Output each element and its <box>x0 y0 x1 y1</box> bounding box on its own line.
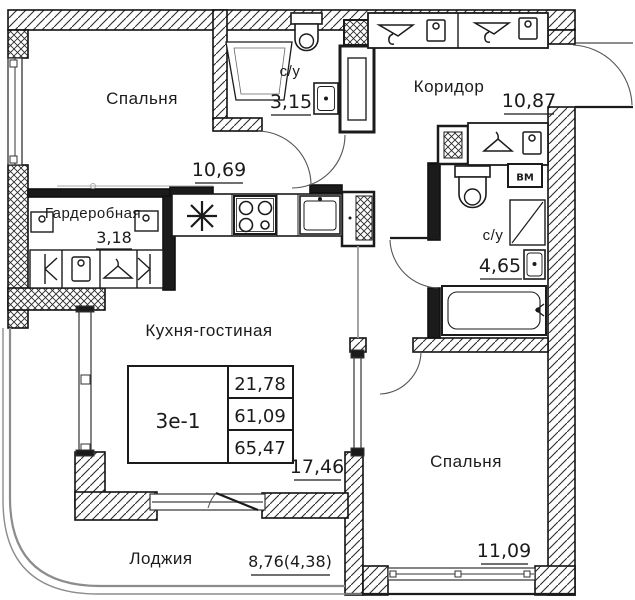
wall-bath1-west <box>213 10 227 120</box>
bathtub-icon <box>442 286 546 335</box>
corridor-area: 10,87 <box>502 90 556 112</box>
wall-bath1-south <box>310 185 342 193</box>
wall-bedroom1-south <box>28 189 170 197</box>
hall-closet-lower <box>468 123 548 165</box>
unit-id: 3е-1 <box>156 409 201 433</box>
wall-right-top <box>548 30 575 44</box>
loggia-name: Лоджия <box>129 549 192 568</box>
wardrobe-area: 3,18 <box>96 228 132 247</box>
wall-kitchen-L-horizontal <box>75 492 157 520</box>
bedroom1-name: Спальня <box>106 89 178 108</box>
wall-bath2-west-upper <box>428 163 440 240</box>
bath2-name: с/у <box>483 227 504 244</box>
bath1-name: с/у <box>280 63 301 80</box>
loggia-area: 8,76(4,38) <box>248 552 332 571</box>
stove-icon <box>234 196 276 234</box>
washing-machine: ВМ <box>508 164 542 187</box>
wall-left-corner <box>8 30 28 58</box>
unit-area-row-2: 61,09 <box>234 406 286 427</box>
bath1-area: 3,15 <box>270 91 312 113</box>
corridor-shaft <box>438 126 468 164</box>
toilet-icon <box>455 166 490 208</box>
bath1-shaft <box>344 20 370 45</box>
kitchen-area: 17,46 <box>290 456 344 478</box>
refrigerator-star-icon <box>187 201 217 231</box>
floor-plan: ВМ <box>0 0 635 600</box>
balcony-window <box>150 494 265 510</box>
kitchen-name: Кухня-гостиная <box>145 321 272 340</box>
washing-machine-label: ВМ <box>516 173 534 184</box>
unit-area-row-3: 65,47 <box>234 438 286 459</box>
shower-square-icon <box>510 200 545 245</box>
bath1-water-heater <box>340 46 374 132</box>
wall-loggia-bedroom <box>345 452 363 595</box>
wardrobe-name: Гардеробная <box>45 205 141 222</box>
wardrobe-cabinet <box>30 250 163 288</box>
unit-spec-table: 3е-1 21,78 61,09 65,47 <box>128 366 293 463</box>
wall-bedroom2-sw-corner <box>363 566 388 595</box>
bath2-area: 4,65 <box>479 255 521 277</box>
bedroom1-window <box>8 58 22 165</box>
bedroom2-area: 11,09 <box>477 540 531 562</box>
corridor-name: Коридор <box>414 77 485 96</box>
wall-right-main <box>548 107 575 595</box>
unit-area-row-1: 21,78 <box>234 374 286 395</box>
kitchen-shaft <box>342 192 374 246</box>
wall-bath1-stub <box>213 118 262 131</box>
washbasin-icon <box>314 83 338 114</box>
wall-balcony-right <box>262 493 348 518</box>
bedroom2-window <box>388 568 535 580</box>
bedroom1-area: 10,69 <box>192 159 246 181</box>
kitchen-sink-icon <box>300 196 340 234</box>
wall-bath2-west-lower <box>428 288 440 338</box>
wall-bedroom2-north <box>413 338 548 352</box>
floor-plan-svg: ВМ <box>0 0 635 600</box>
bedroom2-name: Спальня <box>430 452 502 471</box>
wall-bedroom2-se-corner <box>535 566 575 595</box>
kitchen-counter <box>172 194 342 236</box>
washbasin-icon <box>524 250 545 279</box>
